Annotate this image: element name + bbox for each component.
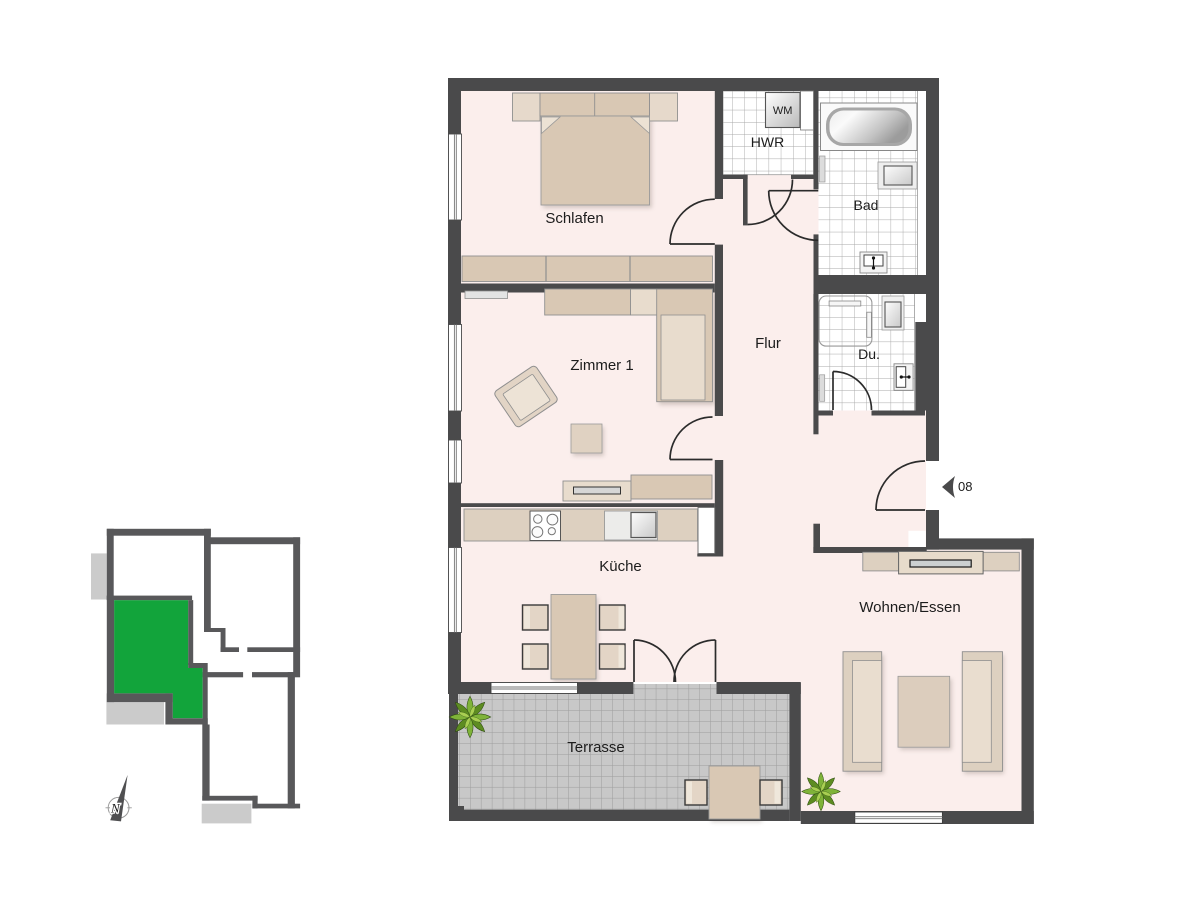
svg-text:Küche: Küche [599, 558, 642, 575]
svg-text:Flur: Flur [755, 335, 781, 352]
svg-text:Du.: Du. [858, 346, 880, 362]
svg-text:Terrasse: Terrasse [567, 739, 625, 756]
svg-text:N: N [110, 801, 121, 816]
svg-text:Wohnen/Essen: Wohnen/Essen [859, 599, 960, 616]
svg-text:Bad: Bad [854, 197, 879, 213]
svg-text:HWR: HWR [751, 134, 784, 150]
svg-text:WM: WM [773, 105, 793, 117]
svg-text:Zimmer 1: Zimmer 1 [570, 357, 633, 374]
svg-text:Schlafen: Schlafen [545, 210, 603, 227]
svg-text:08: 08 [958, 479, 972, 494]
